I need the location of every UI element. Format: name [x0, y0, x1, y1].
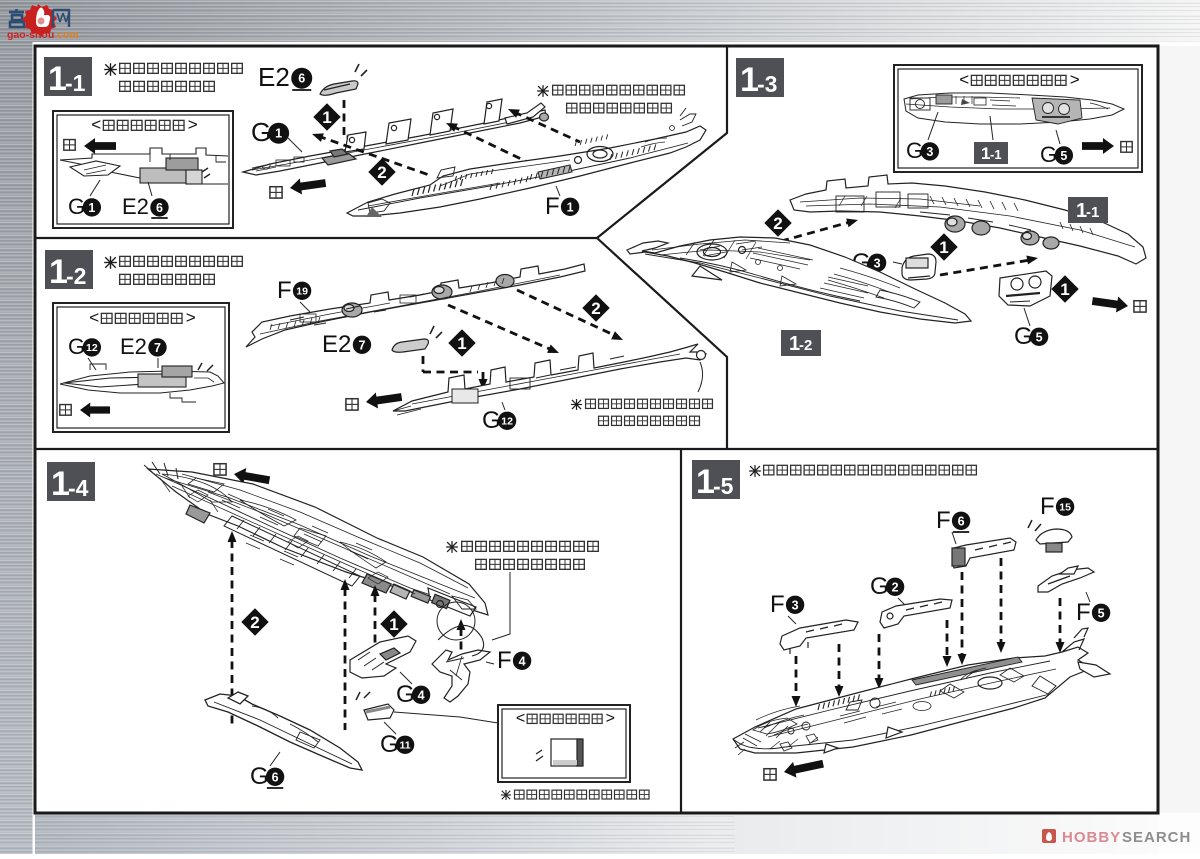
- svg-text:1: 1: [939, 238, 948, 257]
- svg-text:4: 4: [418, 688, 425, 702]
- svg-text:15: 15: [1059, 502, 1071, 514]
- svg-text:F: F: [1040, 493, 1055, 520]
- svg-text:-4: -4: [68, 475, 89, 501]
- svg-text:5: 5: [1098, 606, 1105, 620]
- svg-text:2: 2: [377, 163, 386, 182]
- svg-text:7: 7: [358, 338, 365, 352]
- svg-text:gao-shou.com: gao-shou.com: [7, 29, 79, 41]
- svg-text:5: 5: [1036, 330, 1043, 344]
- svg-text:-1: -1: [65, 70, 86, 96]
- svg-text:G: G: [1040, 142, 1057, 167]
- svg-text:4: 4: [519, 654, 526, 668]
- svg-text:>: >: [186, 308, 196, 327]
- svg-text:12: 12: [86, 342, 98, 354]
- svg-text:6: 6: [298, 72, 305, 86]
- svg-text:>: >: [606, 710, 615, 727]
- svg-text:<: <: [89, 308, 99, 327]
- svg-text:2: 2: [591, 299, 600, 318]
- svg-text:>: >: [1070, 70, 1080, 89]
- svg-text:2: 2: [250, 613, 259, 632]
- svg-text:1: 1: [275, 127, 282, 141]
- svg-text:G: G: [250, 763, 269, 790]
- svg-text:G: G: [396, 681, 415, 708]
- svg-text:G: G: [68, 194, 85, 219]
- svg-text:-1: -1: [1086, 204, 1099, 221]
- svg-text:SEARCH: SEARCH: [1122, 829, 1191, 846]
- svg-text:1: 1: [88, 201, 95, 215]
- svg-text:-2: -2: [66, 263, 86, 289]
- svg-text:E2: E2: [322, 331, 351, 358]
- svg-text:-3: -3: [757, 71, 777, 97]
- svg-text:G: G: [380, 731, 399, 758]
- svg-text:6: 6: [156, 201, 163, 215]
- svg-text:G: G: [1014, 323, 1033, 350]
- svg-text:F: F: [936, 507, 951, 534]
- svg-text:11: 11: [400, 740, 411, 752]
- svg-text:7: 7: [154, 341, 161, 355]
- svg-text:G: G: [482, 407, 501, 434]
- svg-text:<: <: [959, 70, 969, 89]
- svg-text:1: 1: [322, 108, 331, 127]
- svg-text:-1: -1: [990, 147, 1002, 162]
- svg-text:3: 3: [874, 256, 881, 270]
- svg-text:<: <: [91, 115, 101, 134]
- svg-text:2: 2: [773, 214, 782, 233]
- svg-text:2: 2: [892, 580, 899, 594]
- svg-text:-5: -5: [713, 473, 734, 499]
- svg-text:12: 12: [501, 416, 513, 428]
- svg-text:5: 5: [1060, 149, 1067, 163]
- svg-text:3: 3: [792, 598, 799, 612]
- svg-text:G: G: [870, 573, 889, 600]
- svg-text:1: 1: [389, 615, 398, 634]
- svg-text:6: 6: [958, 514, 965, 528]
- svg-text:F: F: [277, 277, 292, 304]
- svg-text:6: 6: [272, 770, 279, 784]
- svg-text:E2: E2: [122, 194, 149, 219]
- svg-text:1: 1: [457, 334, 466, 353]
- svg-text:<: <: [516, 710, 525, 727]
- svg-text:19: 19: [296, 286, 308, 298]
- svg-text:F: F: [545, 193, 560, 220]
- svg-text:>: >: [188, 115, 198, 134]
- svg-text:G: G: [68, 334, 85, 359]
- svg-text:F: F: [497, 647, 512, 674]
- svg-text:E2: E2: [258, 62, 290, 92]
- svg-text:F: F: [1076, 599, 1091, 626]
- svg-text:1: 1: [567, 200, 574, 214]
- svg-text:1: 1: [1060, 280, 1069, 299]
- svg-text:3: 3: [926, 145, 933, 159]
- svg-text:-2: -2: [799, 337, 812, 354]
- svg-text:E2: E2: [120, 334, 147, 359]
- svg-text:G: G: [906, 138, 923, 163]
- svg-text:F: F: [770, 591, 785, 618]
- svg-text:HOBBY: HOBBY: [1062, 829, 1121, 846]
